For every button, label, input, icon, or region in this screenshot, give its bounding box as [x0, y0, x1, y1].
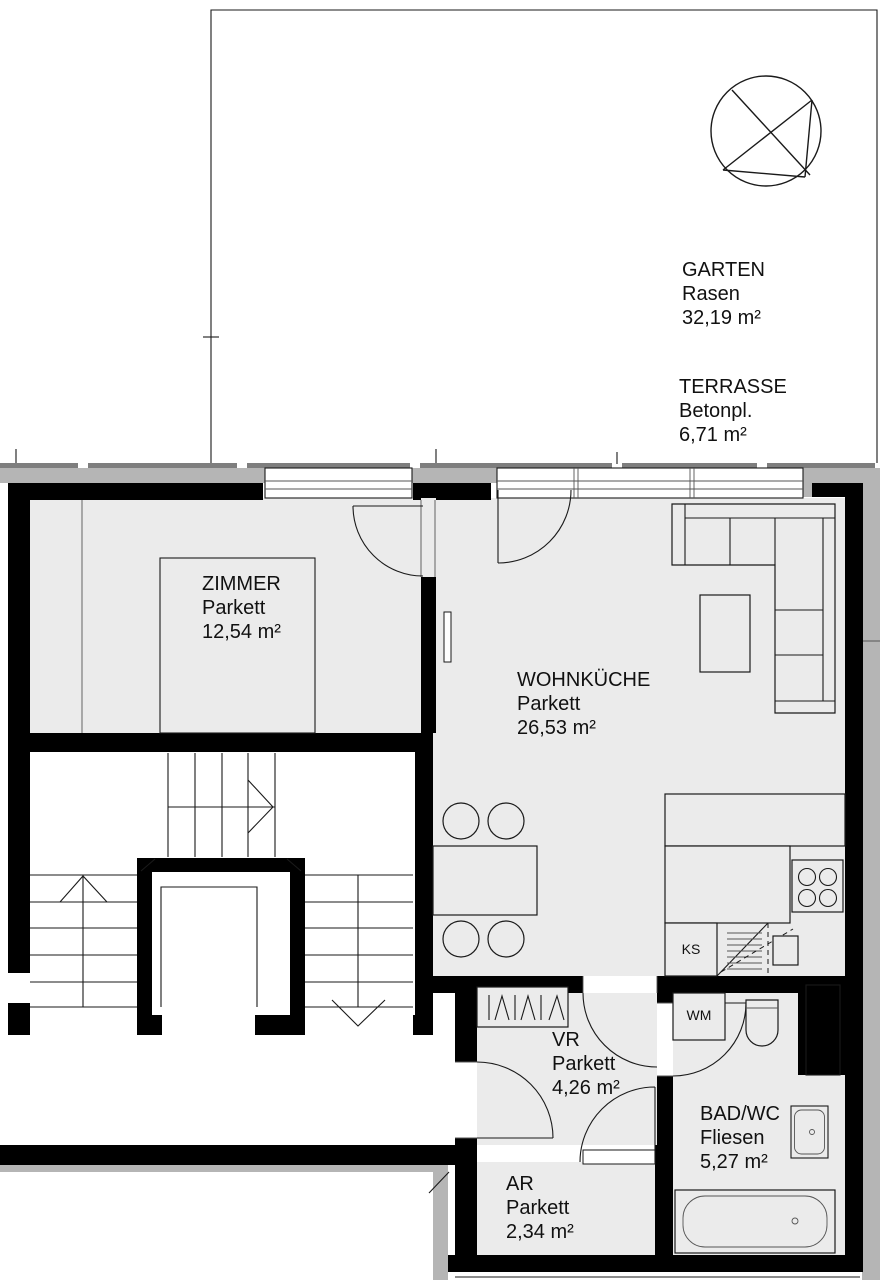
label-fridge: KS — [665, 942, 717, 956]
counter-top — [665, 794, 845, 846]
room-name: GARTEN — [682, 258, 765, 282]
room-finish: Parkett — [506, 1196, 574, 1220]
toilet — [746, 1000, 778, 1046]
room-finish: Rasen — [682, 282, 765, 306]
chair — [488, 921, 524, 957]
room-size: 4,26 m² — [552, 1076, 620, 1100]
label-garten: GARTEN Rasen 32,19 m² — [682, 258, 765, 330]
label-vr: VR Parkett 4,26 m² — [552, 1028, 620, 1100]
label-washing-machine: WM — [673, 1008, 725, 1022]
room-size: 26,53 m² — [517, 716, 650, 740]
room-size: 2,34 m² — [506, 1220, 574, 1244]
room-finish: Parkett — [517, 692, 650, 716]
room-name: TERRASSE — [679, 375, 787, 399]
stairwell — [30, 753, 433, 1035]
room-finish: Fliesen — [700, 1126, 780, 1150]
cooktop — [792, 860, 843, 912]
room-size: 32,19 m² — [682, 306, 765, 330]
floor-plan-drawing — [0, 0, 887, 1280]
floor-plan: GARTEN Rasen 32,19 m² TERRASSE Betonpl. … — [0, 0, 887, 1280]
room-finish: Betonpl. — [679, 399, 787, 423]
room-name: ZIMMER — [202, 572, 281, 596]
dining-table — [433, 846, 537, 915]
label-ar: AR Parkett 2,34 m² — [506, 1172, 574, 1244]
room-finish: Parkett — [202, 596, 281, 620]
north-arrow-icon — [711, 76, 821, 186]
radiator — [444, 612, 451, 662]
room-name: VR — [552, 1028, 620, 1052]
sliding-door-ar — [583, 1150, 655, 1164]
label-wohnkueche: WOHNKÜCHE Parkett 26,53 m² — [517, 668, 650, 740]
room-size: 5,27 m² — [700, 1150, 780, 1174]
counter-low — [665, 846, 790, 923]
room-size: 6,71 m² — [679, 423, 787, 447]
elevator — [137, 858, 433, 1035]
coffee-table — [700, 595, 750, 672]
chair — [488, 803, 524, 839]
chair — [443, 921, 479, 957]
room-size: 12,54 m² — [202, 620, 281, 644]
room-name: BAD/WC — [700, 1102, 780, 1126]
chair — [443, 803, 479, 839]
room-finish: Parkett — [552, 1052, 620, 1076]
label-zimmer: ZIMMER Parkett 12,54 m² — [202, 572, 281, 644]
windows — [265, 468, 803, 498]
sink-unit — [773, 936, 798, 965]
room-name: WOHNKÜCHE — [517, 668, 650, 692]
label-badwc: BAD/WC Fliesen 5,27 m² — [700, 1102, 780, 1174]
room-name: AR — [506, 1172, 574, 1196]
label-terrasse: TERRASSE Betonpl. 6,71 m² — [679, 375, 787, 447]
vr-wardrobe — [477, 987, 568, 1027]
bathtub — [675, 1190, 835, 1253]
